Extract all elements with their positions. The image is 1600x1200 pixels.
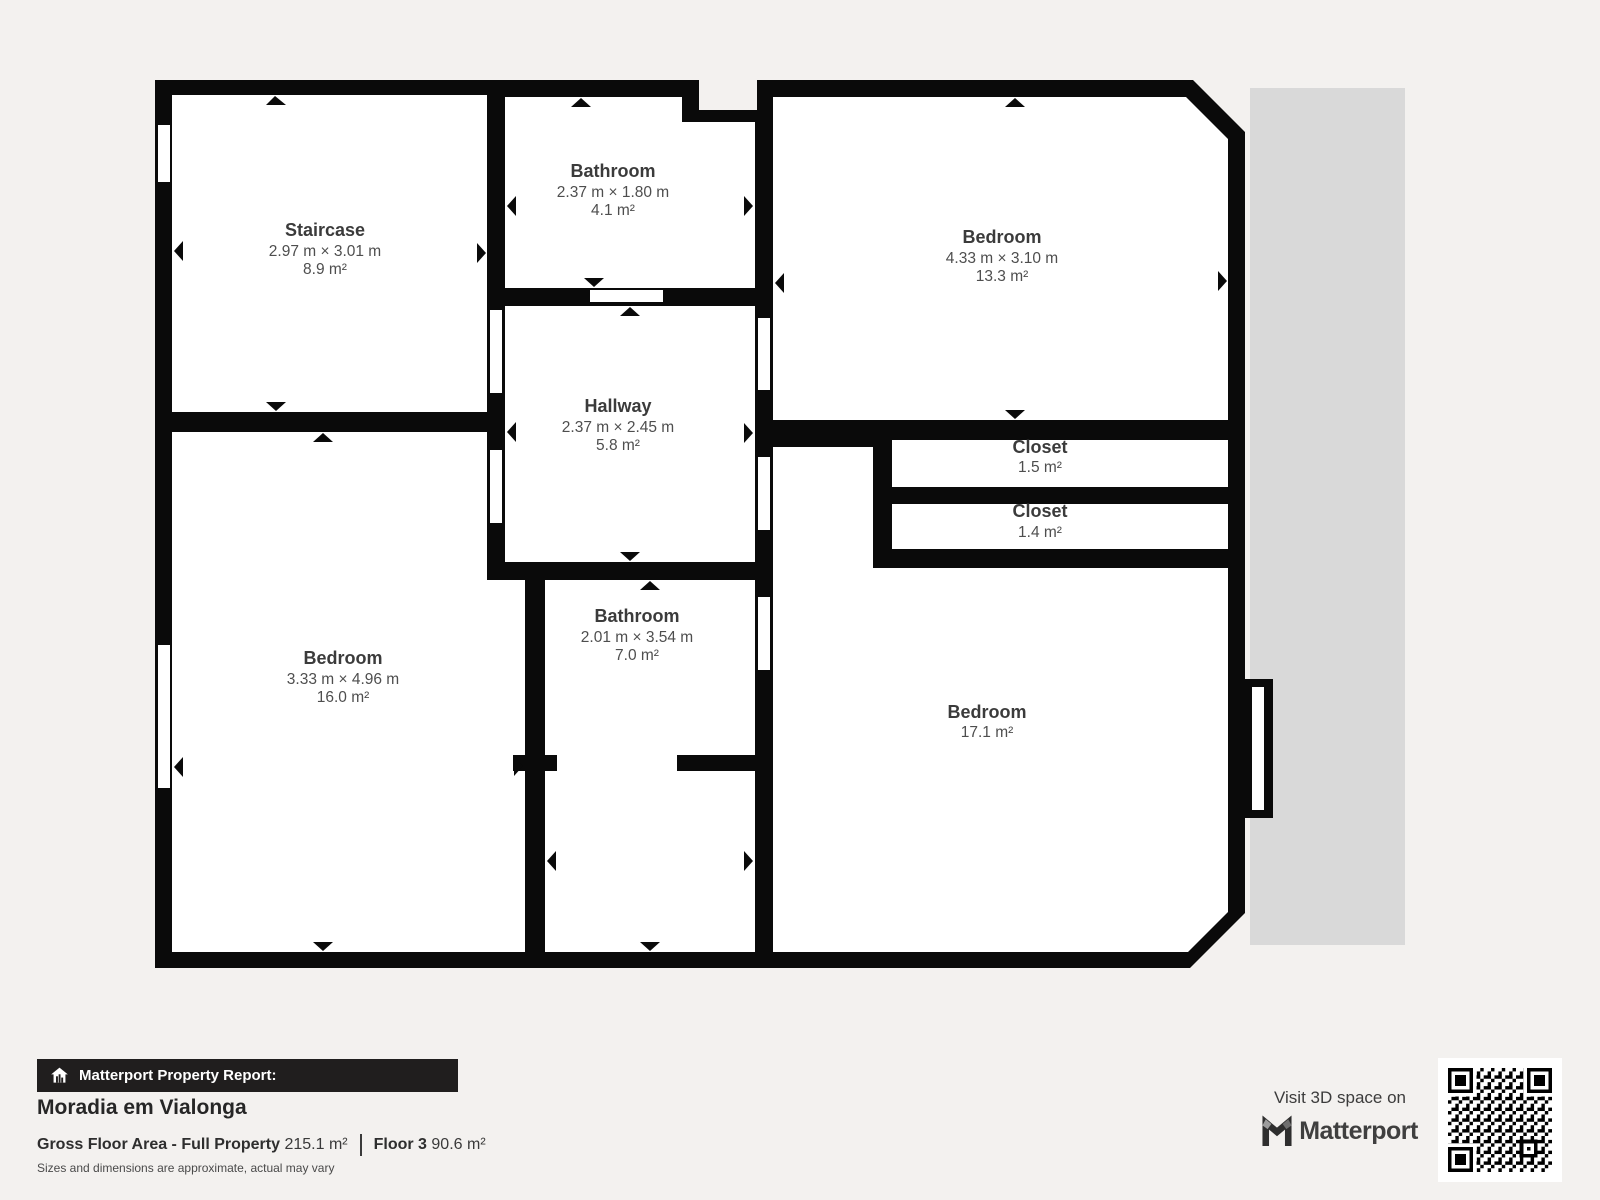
property-report-page: Staircase 2.97 m × 3.01 m 8.9 m² Bathroo…: [0, 0, 1600, 1200]
gross-floor-area-value: 215.1 m²: [284, 1136, 347, 1153]
floor-label: Floor 3: [374, 1136, 427, 1153]
visit-3d-text: Visit 3D space on: [1235, 1088, 1445, 1108]
room-label-name: Staircase: [285, 220, 365, 240]
room-label-dims: 4.33 m × 3.10 m: [946, 250, 1058, 267]
room-label-dims: 2.37 m × 1.80 m: [557, 184, 669, 201]
report-banner-label: Matterport Property Report:: [79, 1067, 277, 1084]
property-title: Moradia em Vialonga: [37, 1096, 247, 1120]
door-opening: [590, 290, 663, 302]
disclaimer-text: Sizes and dimensions are approximate, ac…: [37, 1161, 334, 1175]
room-label-dims: 2.01 m × 3.54 m: [581, 629, 693, 646]
room-label-area: 16.0 m²: [317, 689, 370, 706]
room-label-name: Closet: [1012, 437, 1067, 457]
floorplan-canvas: Staircase 2.97 m × 3.01 m 8.9 m² Bathroo…: [0, 0, 1600, 1200]
room-label-area: 7.0 m²: [615, 647, 659, 664]
area-summary: Gross Floor Area - Full Property 215.1 m…: [37, 1134, 486, 1156]
room-label-area: 13.3 m²: [976, 268, 1029, 285]
window-opening: [758, 597, 770, 670]
bay-window-glass: [1252, 687, 1264, 810]
floor-value: 90.6 m²: [431, 1136, 485, 1153]
plan-shadow: [1250, 88, 1405, 945]
wall-stub: [677, 755, 755, 771]
room-label-dims: 2.97 m × 3.01 m: [269, 243, 381, 260]
door-opening: [758, 457, 770, 530]
qr-code: [1438, 1058, 1562, 1182]
door-opening: [490, 450, 502, 523]
matterport-logo: Matterport: [1235, 1114, 1445, 1148]
room-label-name: Bathroom: [571, 161, 656, 181]
room-label-area: 1.4 m²: [1018, 524, 1062, 541]
room-label-name: Hallway: [584, 396, 651, 416]
bay-window: [1245, 679, 1273, 818]
window-opening: [158, 125, 170, 182]
divider: [360, 1134, 362, 1156]
floor-area: Floor 3 90.6 m²: [374, 1136, 486, 1154]
gross-floor-area: Gross Floor Area - Full Property 215.1 m…: [37, 1136, 348, 1154]
room-label-area: 1.5 m²: [1018, 459, 1062, 476]
matterport-m-icon: [1262, 1114, 1292, 1148]
house-report-icon: [50, 1066, 69, 1085]
gross-floor-area-label: Gross Floor Area - Full Property: [37, 1136, 280, 1153]
room-label-area: 5.8 m²: [596, 437, 640, 454]
room-label-name: Bedroom: [947, 702, 1026, 722]
room-label-name: Bedroom: [962, 227, 1041, 247]
room-label-name: Bathroom: [595, 606, 680, 626]
room-label-area: 8.9 m²: [303, 261, 347, 278]
visit-3d-block: Visit 3D space on Matterport: [1235, 1088, 1445, 1148]
report-banner: Matterport Property Report:: [37, 1059, 458, 1092]
room-label-name: Closet: [1012, 501, 1067, 521]
room-label-area: 4.1 m²: [591, 202, 635, 219]
room-label-dims: 2.37 m × 2.45 m: [562, 419, 674, 436]
door-opening: [490, 310, 502, 393]
matterport-wordmark: Matterport: [1299, 1117, 1418, 1146]
room-label-name: Bedroom: [303, 648, 382, 668]
window-opening: [158, 645, 170, 788]
room-label-area: 17.1 m²: [961, 724, 1014, 741]
qr-code-pattern: [1448, 1068, 1552, 1172]
room-label-dims: 3.33 m × 4.96 m: [287, 671, 399, 688]
door-opening: [758, 318, 770, 390]
